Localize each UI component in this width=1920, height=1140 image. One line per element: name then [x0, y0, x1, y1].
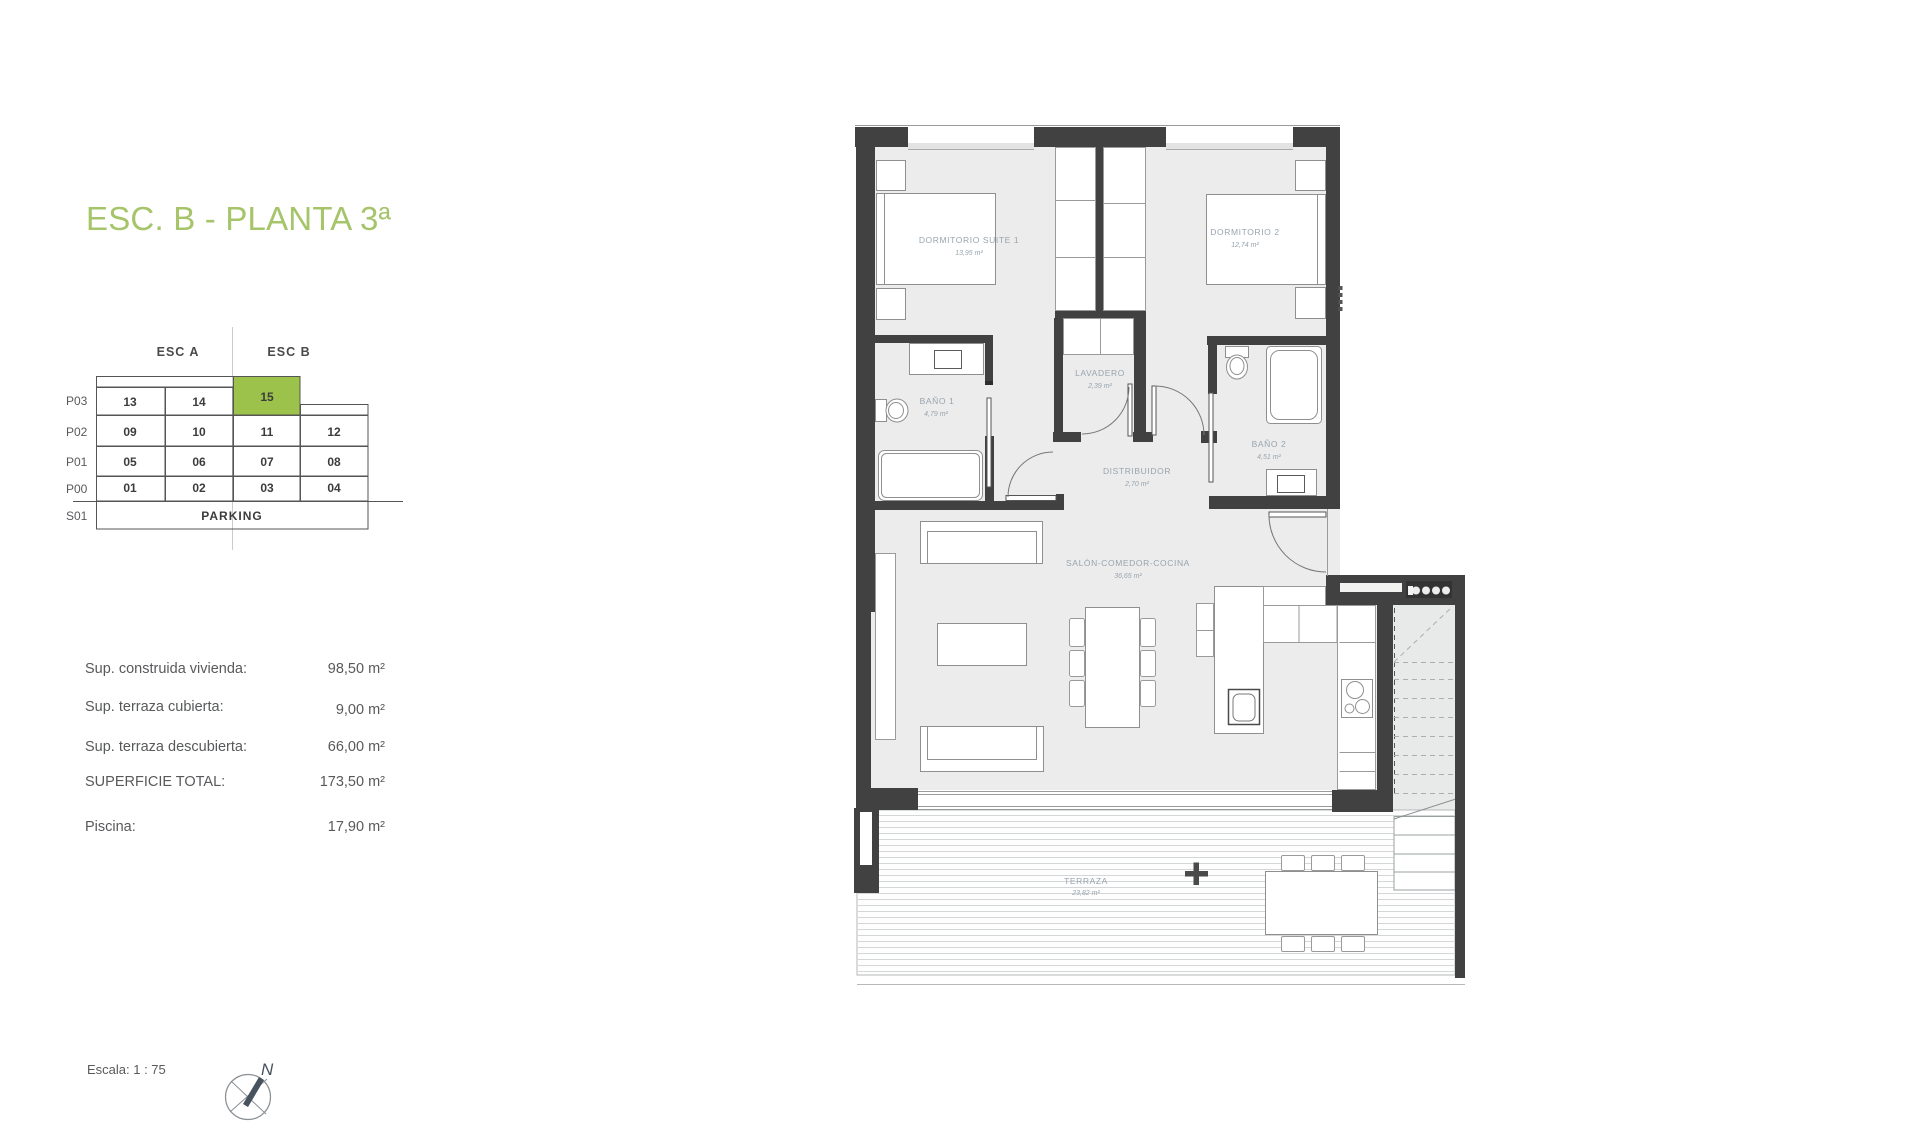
- svg-text:TERRAZA: TERRAZA: [1064, 876, 1108, 886]
- svg-text:P00: P00: [66, 482, 88, 496]
- svg-text:02: 02: [192, 481, 206, 495]
- svg-text:Sup. terraza descubierta:: Sup. terraza descubierta:: [85, 739, 247, 755]
- svg-text:Sup. construida vivienda:: Sup. construida vivienda:: [85, 661, 247, 677]
- svg-text:15: 15: [260, 390, 274, 404]
- svg-text:S01: S01: [66, 509, 88, 523]
- svg-text:N: N: [261, 1060, 274, 1079]
- svg-text:08: 08: [327, 455, 341, 469]
- svg-text:BAÑO 1: BAÑO 1: [920, 396, 955, 406]
- svg-text:01: 01: [123, 481, 137, 495]
- svg-text:ESC A: ESC A: [157, 345, 200, 359]
- svg-text:66,00 m²: 66,00 m²: [328, 739, 385, 755]
- svg-text:06: 06: [192, 455, 206, 469]
- svg-text:P02: P02: [66, 425, 88, 439]
- svg-text:07: 07: [260, 455, 274, 469]
- svg-text:DORMITORIO 2: DORMITORIO 2: [1210, 227, 1279, 237]
- svg-text:P01: P01: [66, 455, 88, 469]
- svg-text:PARKING: PARKING: [201, 509, 262, 523]
- svg-text:98,50 m²: 98,50 m²: [328, 661, 385, 677]
- svg-text:12,74 m²: 12,74 m²: [1231, 242, 1259, 249]
- svg-text:BAÑO 2: BAÑO 2: [1252, 439, 1287, 449]
- svg-text:2,39 m²: 2,39 m²: [1087, 383, 1112, 390]
- svg-text:173,50 m²: 173,50 m²: [320, 774, 385, 790]
- svg-text:03: 03: [260, 481, 274, 495]
- svg-text:9,00 m²: 9,00 m²: [336, 702, 385, 718]
- svg-text:DORMITORIO SUITE 1: DORMITORIO SUITE 1: [919, 235, 1019, 245]
- svg-text:Piscina:: Piscina:: [85, 819, 136, 835]
- svg-text:SALÓN-COMEDOR-COCINA: SALÓN-COMEDOR-COCINA: [1066, 558, 1190, 568]
- svg-text:2,70 m²: 2,70 m²: [1124, 481, 1149, 488]
- svg-text:14: 14: [192, 395, 206, 409]
- svg-text:11: 11: [261, 425, 274, 439]
- svg-text:13: 13: [123, 395, 137, 409]
- svg-text:SUPERFICIE TOTAL:: SUPERFICIE TOTAL:: [85, 774, 225, 790]
- svg-text:12: 12: [327, 425, 341, 439]
- svg-text:05: 05: [123, 455, 137, 469]
- svg-text:P03: P03: [66, 394, 88, 408]
- svg-text:10: 10: [192, 425, 206, 439]
- svg-text:LAVADERO: LAVADERO: [1075, 368, 1125, 378]
- svg-text:DISTRIBUIDOR: DISTRIBUIDOR: [1103, 466, 1171, 476]
- svg-text:36,65 m²: 36,65 m²: [1114, 573, 1142, 580]
- svg-text:23,82 m²: 23,82 m²: [1071, 890, 1100, 897]
- svg-text:09: 09: [123, 425, 137, 439]
- svg-text:04: 04: [327, 481, 341, 495]
- svg-text:13,95 m²: 13,95 m²: [955, 250, 983, 257]
- svg-text:ESC B: ESC B: [267, 345, 310, 359]
- svg-text:4,79 m²: 4,79 m²: [924, 411, 948, 418]
- svg-text:ESC. B - PLANTA 3ª: ESC. B - PLANTA 3ª: [86, 200, 392, 237]
- svg-text:4,51 m²: 4,51 m²: [1257, 454, 1281, 461]
- svg-text:Sup. terraza cubierta:: Sup. terraza cubierta:: [85, 699, 224, 715]
- svg-text:17,90 m²: 17,90 m²: [328, 819, 385, 835]
- svg-text:Escala: 1 : 75: Escala: 1 : 75: [87, 1062, 166, 1077]
